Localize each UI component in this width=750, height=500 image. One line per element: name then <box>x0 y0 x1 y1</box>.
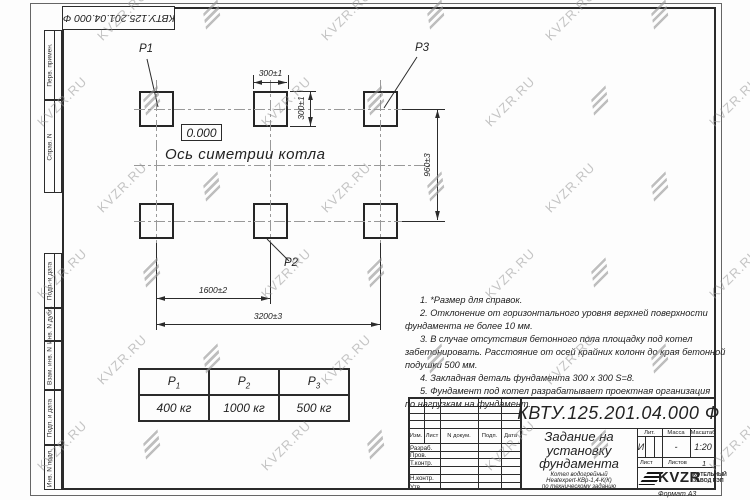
note-3: 3. В случае отсутствия бетонного пола пл… <box>405 333 723 346</box>
dim-total: 3200±3 <box>238 311 298 321</box>
notes-block: 1. *Размер для справок. 2. Отклонение от… <box>405 294 723 411</box>
note-4: 4. Закладная деталь фундамента 300 х 300… <box>405 372 723 385</box>
note-2-cont: фундамента не более 10 мм. <box>405 320 723 333</box>
note-3-cont: подушки 500 мм. <box>405 359 723 372</box>
note-3-cont: забетонировать. Расстояние от осей крайн… <box>405 346 723 359</box>
pad-label-p3: P3 <box>415 42 429 54</box>
level-mark: 0.000 <box>181 124 222 141</box>
centerlines <box>134 80 442 247</box>
note-2: 2. Отклонение от горизонтального уровня … <box>405 307 723 320</box>
drawing-sheet: КВТУ.125.201.04.000 Ф Перв. примен. Спра… <box>0 0 750 500</box>
dim-col-pitch: 1600±2 <box>183 285 243 295</box>
dim-pad-height: 300±1 <box>296 78 306 138</box>
axis-of-symmetry-label: Ось симетрии котла <box>165 146 325 163</box>
note-5: 5. Фундамент под котел разрабатывает про… <box>405 385 723 398</box>
pad-label-p2: P2 <box>284 257 298 269</box>
dim-row-pitch: 960±3 <box>422 135 432 195</box>
note-5-cont: по нагрузкам на фундамент. <box>405 398 723 411</box>
dim-pad-width: 300±1 <box>240 68 301 78</box>
plan-linework <box>0 0 750 500</box>
pad-label-p1: P1 <box>139 43 153 55</box>
note-1: 1. *Размер для справок. <box>405 294 723 307</box>
